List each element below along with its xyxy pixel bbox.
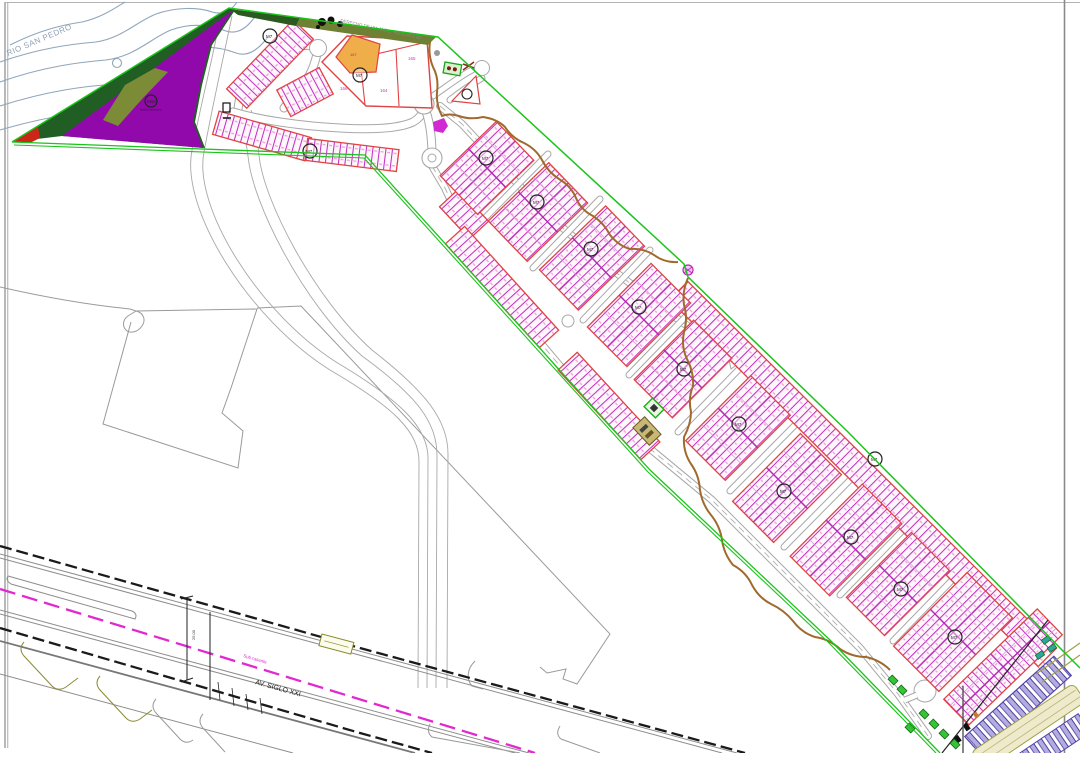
svg-text:M7: M7 xyxy=(635,305,642,310)
svg-text:M7: M7 xyxy=(266,34,273,39)
svg-text:M7: M7 xyxy=(482,156,489,161)
svg-text:164: 164 xyxy=(380,88,388,93)
svg-text:M13: M13 xyxy=(147,99,156,104)
svg-text:M7: M7 xyxy=(847,535,854,540)
svg-text:M7: M7 xyxy=(951,635,958,640)
svg-text:M7: M7 xyxy=(680,367,687,372)
svg-text:M7: M7 xyxy=(533,200,540,205)
svg-text:166: 166 xyxy=(340,86,348,91)
svg-text:165: 165 xyxy=(408,56,416,61)
svg-text:M7: M7 xyxy=(356,73,363,78)
svg-text:M7: M7 xyxy=(587,247,594,252)
svg-text:M7: M7 xyxy=(735,422,742,427)
svg-text:25.00: 25.00 xyxy=(191,629,196,640)
svg-text:M7: M7 xyxy=(897,587,904,592)
svg-text:M7: M7 xyxy=(780,489,787,494)
svg-text:167: 167 xyxy=(350,52,357,57)
